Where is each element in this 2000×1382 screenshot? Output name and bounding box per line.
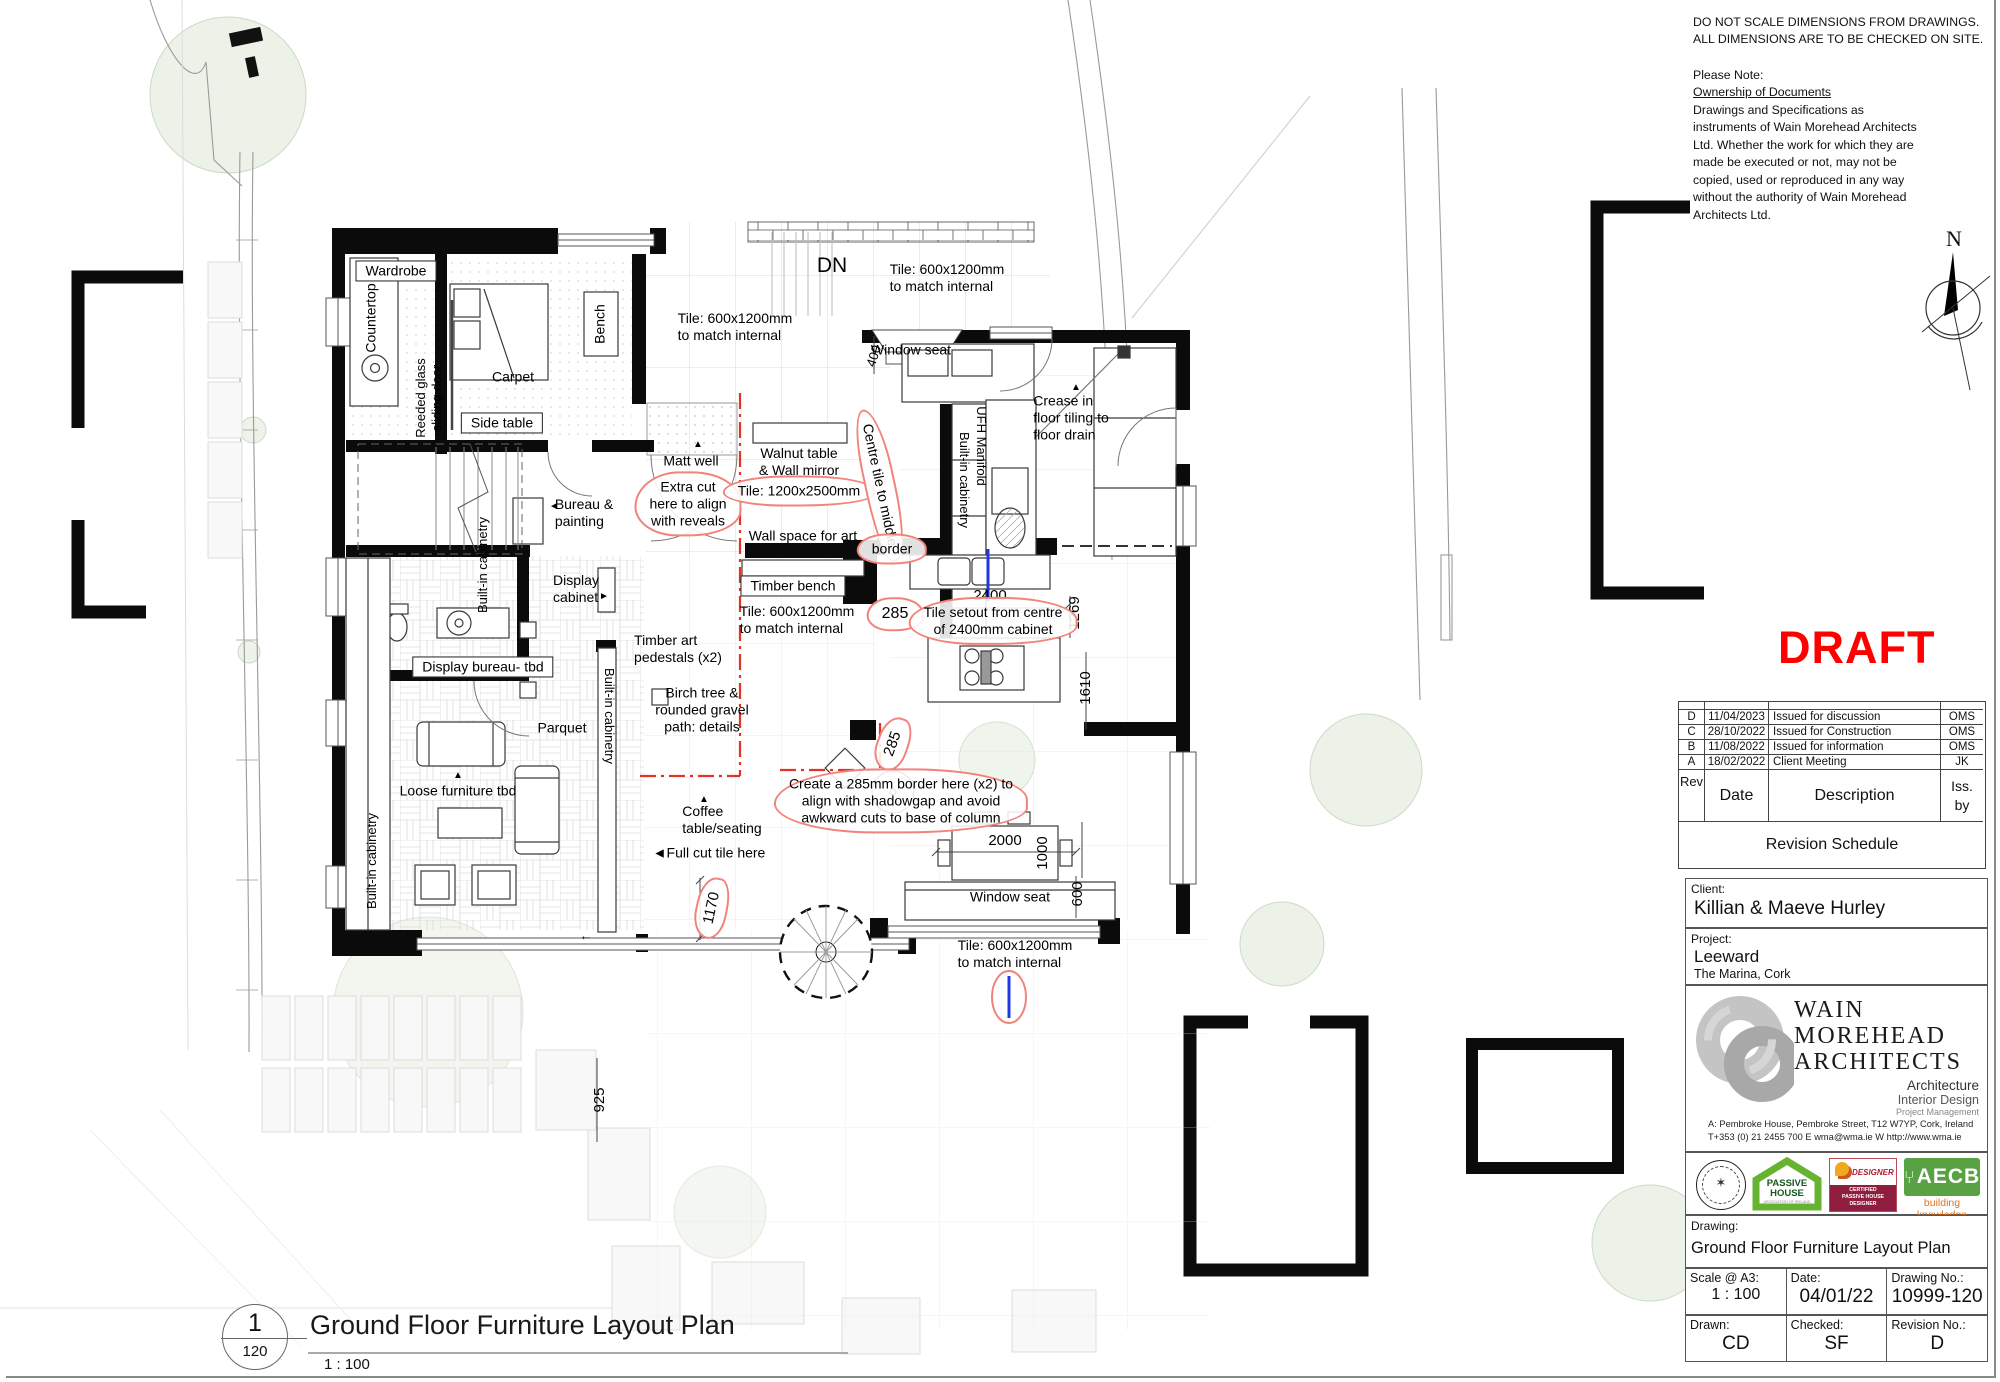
plan-title: Ground Floor Furniture Layout Plan — [310, 1310, 735, 1341]
disclaimer-note-label: Please Note: — [1693, 67, 1943, 84]
drawing-title-section: Drawing: Ground Floor Furniture Layout P… — [1685, 1215, 1988, 1268]
architect-logo-section: WAIN MOREHEAD ARCHITECTS Architecture In… — [1685, 985, 1988, 1152]
scale-cell: Scale @ A3: 1 : 100 — [1685, 1268, 1787, 1315]
title-block-row2: Drawn: CD Checked: SF Revision No.: D — [1685, 1315, 1988, 1362]
client-name: Killian & Maeve Hurley — [1686, 896, 1987, 920]
certifications-section: ✶ PASSIVE HOUSE ASSOCIATION OF IRELAND D… — [1685, 1152, 1988, 1215]
plan-number: 1 — [223, 1309, 287, 1338]
drawing-number-label: Drawing No.: — [1887, 1269, 1987, 1285]
revision-col-description: Description — [1769, 770, 1941, 822]
disclaimer-body: Drawings and Specifications as instrumen… — [1693, 102, 1925, 224]
disclaimer-line1: DO NOT SCALE DIMENSIONS FROM DRAWINGS. — [1693, 14, 1943, 31]
designer-sub: CERTIFIED PASSIVE HOUSE DESIGNER — [1830, 1185, 1896, 1211]
revision-number-value: D — [1887, 1333, 1987, 1355]
revision-schedule-table: D11/04/2023Issued for discussionOMSC28/1… — [1678, 701, 1986, 869]
disclaimer-ownership-heading: Ownership of Documents — [1693, 84, 1943, 101]
architect-contact: A: Pembroke House, Pembroke Street, T12 … — [1708, 1118, 1978, 1145]
date-label: Date: — [1787, 1269, 1887, 1285]
revision-row: B11/08/2022Issued for informationOMS — [1679, 740, 1985, 755]
revision-number-cell: Revision No.: D — [1886, 1315, 1988, 1362]
date-value: 04/01/22 — [1787, 1286, 1887, 1308]
plan-number-divider — [221, 1338, 307, 1339]
phd-designer-logo: DESIGNER CERTIFIED PASSIVE HOUSE DESIGNE… — [1829, 1158, 1897, 1212]
designer-blob-icon — [1835, 1162, 1849, 1176]
revision-row: C28/10/2022Issued for ConstructionOMS — [1679, 725, 1985, 740]
sheet: { "colors": {"draft": "#ff0000", "markup… — [0, 0, 2000, 1382]
drawn-cell: Drawn: CD — [1685, 1315, 1787, 1362]
sheet-border-bottom — [6, 1376, 1996, 1378]
architect-name: WAIN MOREHEAD ARCHITECTS Architecture In… — [1794, 998, 1979, 1117]
checked-cell: Checked: SF — [1786, 1315, 1888, 1362]
revision-col-date: Date — [1705, 770, 1769, 822]
spiral-stair — [780, 906, 872, 998]
passive-house-logo: PASSIVE HOUSE ASSOCIATION OF IRELAND — [1750, 1156, 1824, 1212]
drawing-label: Drawing: — [1686, 1216, 1987, 1233]
revision-rows: D11/04/2023Issued for discussionOMSC28/1… — [1679, 710, 1985, 770]
project-location: The Marina, Cork — [1686, 967, 1987, 981]
draft-stamp: DRAFT — [1778, 622, 1935, 674]
floor-finishes — [352, 222, 1210, 1330]
checked-label: Checked: — [1787, 1316, 1887, 1332]
plan-sheet-number: 120 — [223, 1343, 287, 1360]
drawing-number-value: 10999-120 — [1887, 1286, 1987, 1308]
disclaimer-line2: ALL DIMENSIONS ARE TO BE CHECKED ON SITE… — [1693, 31, 1943, 48]
client-section: Client: Killian & Maeve Hurley — [1685, 878, 1988, 928]
revision-col-rev: Rev — [1679, 770, 1705, 822]
project-section: Project: Leeward The Marina, Cork — [1685, 928, 1988, 985]
revision-header-row: Rev Date Description Iss. by — [1679, 770, 1985, 822]
revision-col-issued-by: Iss. by — [1941, 770, 1983, 822]
architect-service-2: Interior Design — [1794, 1093, 1979, 1107]
architect-name-line3: ARCHITECTS — [1794, 1050, 1979, 1076]
drawing-title: Ground Floor Furniture Layout Plan — [1686, 1233, 1987, 1258]
wma-knot-icon — [1694, 992, 1794, 1112]
revision-row: A18/02/2022Client MeetingJK — [1679, 755, 1985, 770]
aecb-logo: ⑂ AECB — [1904, 1158, 1980, 1196]
plan-title-rule — [308, 1352, 848, 1354]
designer-title: DESIGNER — [1852, 1168, 1894, 1177]
scale-value: 1 : 100 — [1686, 1286, 1786, 1304]
drawing-number-cell: Drawing No.: 10999-120 — [1886, 1268, 1988, 1315]
project-label: Project: — [1686, 929, 1987, 946]
architect-service-1: Architecture — [1794, 1078, 1979, 1093]
sheet-border-right — [1994, 0, 1996, 1378]
riai-seal-icon: ✶ — [1696, 1160, 1746, 1210]
disclaimer: DO NOT SCALE DIMENSIONS FROM DRAWINGS. A… — [1693, 14, 1943, 224]
scale-label: Scale @ A3: — [1686, 1269, 1786, 1285]
date-cell: Date: 04/01/22 — [1786, 1268, 1888, 1315]
plan-scale: 1 : 100 — [324, 1356, 370, 1373]
client-label: Client: — [1686, 879, 1987, 896]
drawn-value: CD — [1686, 1333, 1786, 1355]
drawn-label: Drawn: — [1686, 1316, 1786, 1332]
architect-contact-line: T+353 (0) 21 2455 700 E wma@wma.ie W htt… — [1708, 1131, 1978, 1144]
title-block-row1: Scale @ A3: 1 : 100 Date: 04/01/22 Drawi… — [1685, 1268, 1988, 1315]
architect-address-line: A: Pembroke House, Pembroke Street, T12 … — [1708, 1118, 1978, 1131]
compass-north-label: N — [1946, 226, 1962, 251]
passive-house-line2: HOUSE — [1770, 1188, 1804, 1199]
checked-value: SF — [1787, 1333, 1887, 1355]
passive-house-sub: ASSOCIATION OF IRELAND — [1764, 1200, 1811, 1204]
revision-schedule-title: Revision Schedule — [1679, 822, 1985, 868]
revision-number-label: Revision No.: — [1887, 1316, 1987, 1332]
compass-icon: N — [1922, 226, 1990, 390]
architect-name-line1: WAIN — [1794, 998, 1979, 1024]
revision-row: D11/04/2023Issued for discussionOMS — [1679, 710, 1985, 725]
architect-services: Architecture Interior Design Project Man… — [1794, 1078, 1979, 1117]
plan-number-bubble: 1 120 — [222, 1304, 288, 1370]
project-name: Leeward — [1686, 946, 1987, 967]
revision-row-empty — [1679, 702, 1985, 710]
architect-service-3: Project Management — [1794, 1107, 1979, 1117]
aecb-tree-icon: ⑂ — [1904, 1167, 1915, 1188]
aecb-title: AECB — [1917, 1165, 1981, 1189]
architect-name-line2: MOREHEAD — [1794, 1024, 1979, 1050]
